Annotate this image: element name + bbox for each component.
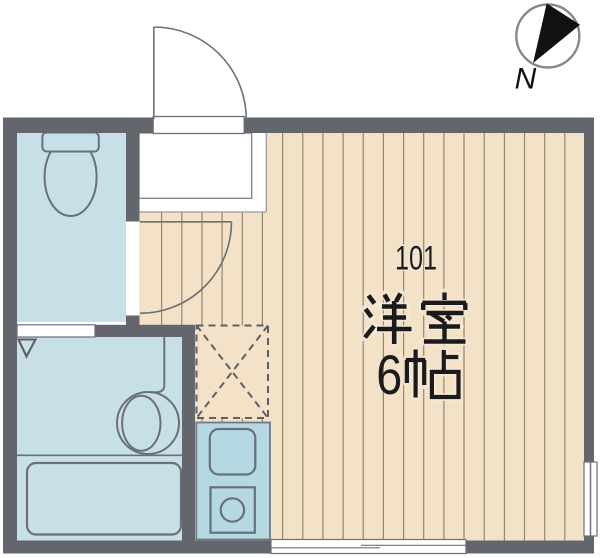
svg-text:N: N: [515, 63, 537, 96]
svg-text:101: 101: [395, 240, 437, 278]
svg-text:6: 6: [376, 343, 402, 406]
